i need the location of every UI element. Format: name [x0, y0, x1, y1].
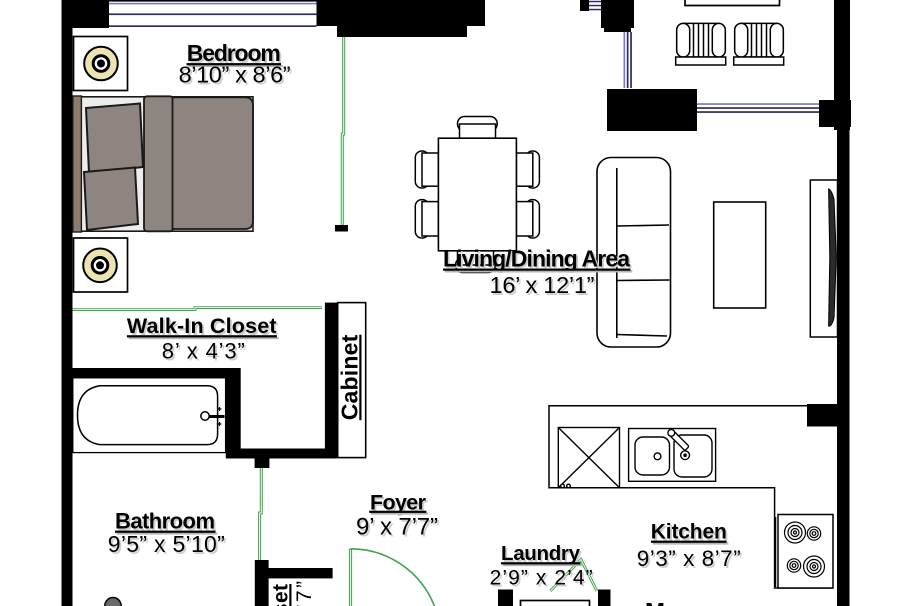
svg-text:M: M — [645, 599, 665, 606]
svg-text:8’ x 4’3”: 8’ x 4’3” — [162, 339, 245, 364]
svg-text:9’3” x 8’7”: 9’3” x 8’7” — [637, 546, 741, 571]
svg-text:9’ x 7’7”: 9’ x 7’7” — [356, 514, 438, 541]
svg-text:Bathroom: Bathroom — [115, 509, 215, 534]
svg-text:Closet: Closet — [270, 584, 293, 606]
svg-text:Living/Dining Area: Living/Dining Area — [443, 245, 630, 271]
svg-text:9’5” x 5’10”: 9’5” x 5’10” — [108, 531, 225, 557]
svg-text:Walk-In Closet: Walk-In Closet — [127, 314, 277, 338]
svg-text:2’7”: 2’7” — [293, 581, 316, 606]
svg-text:16’ x 12’1”: 16’ x 12’1” — [490, 272, 595, 298]
svg-text:Kitchen: Kitchen — [651, 521, 727, 544]
svg-text:2’9” x 2’4”: 2’9” x 2’4” — [490, 567, 593, 590]
svg-text:Cabinet: Cabinet — [337, 334, 363, 420]
svg-text:Laundry: Laundry — [501, 542, 581, 565]
svg-text:8’10” x 8’6”: 8’10” x 8’6” — [179, 62, 291, 88]
